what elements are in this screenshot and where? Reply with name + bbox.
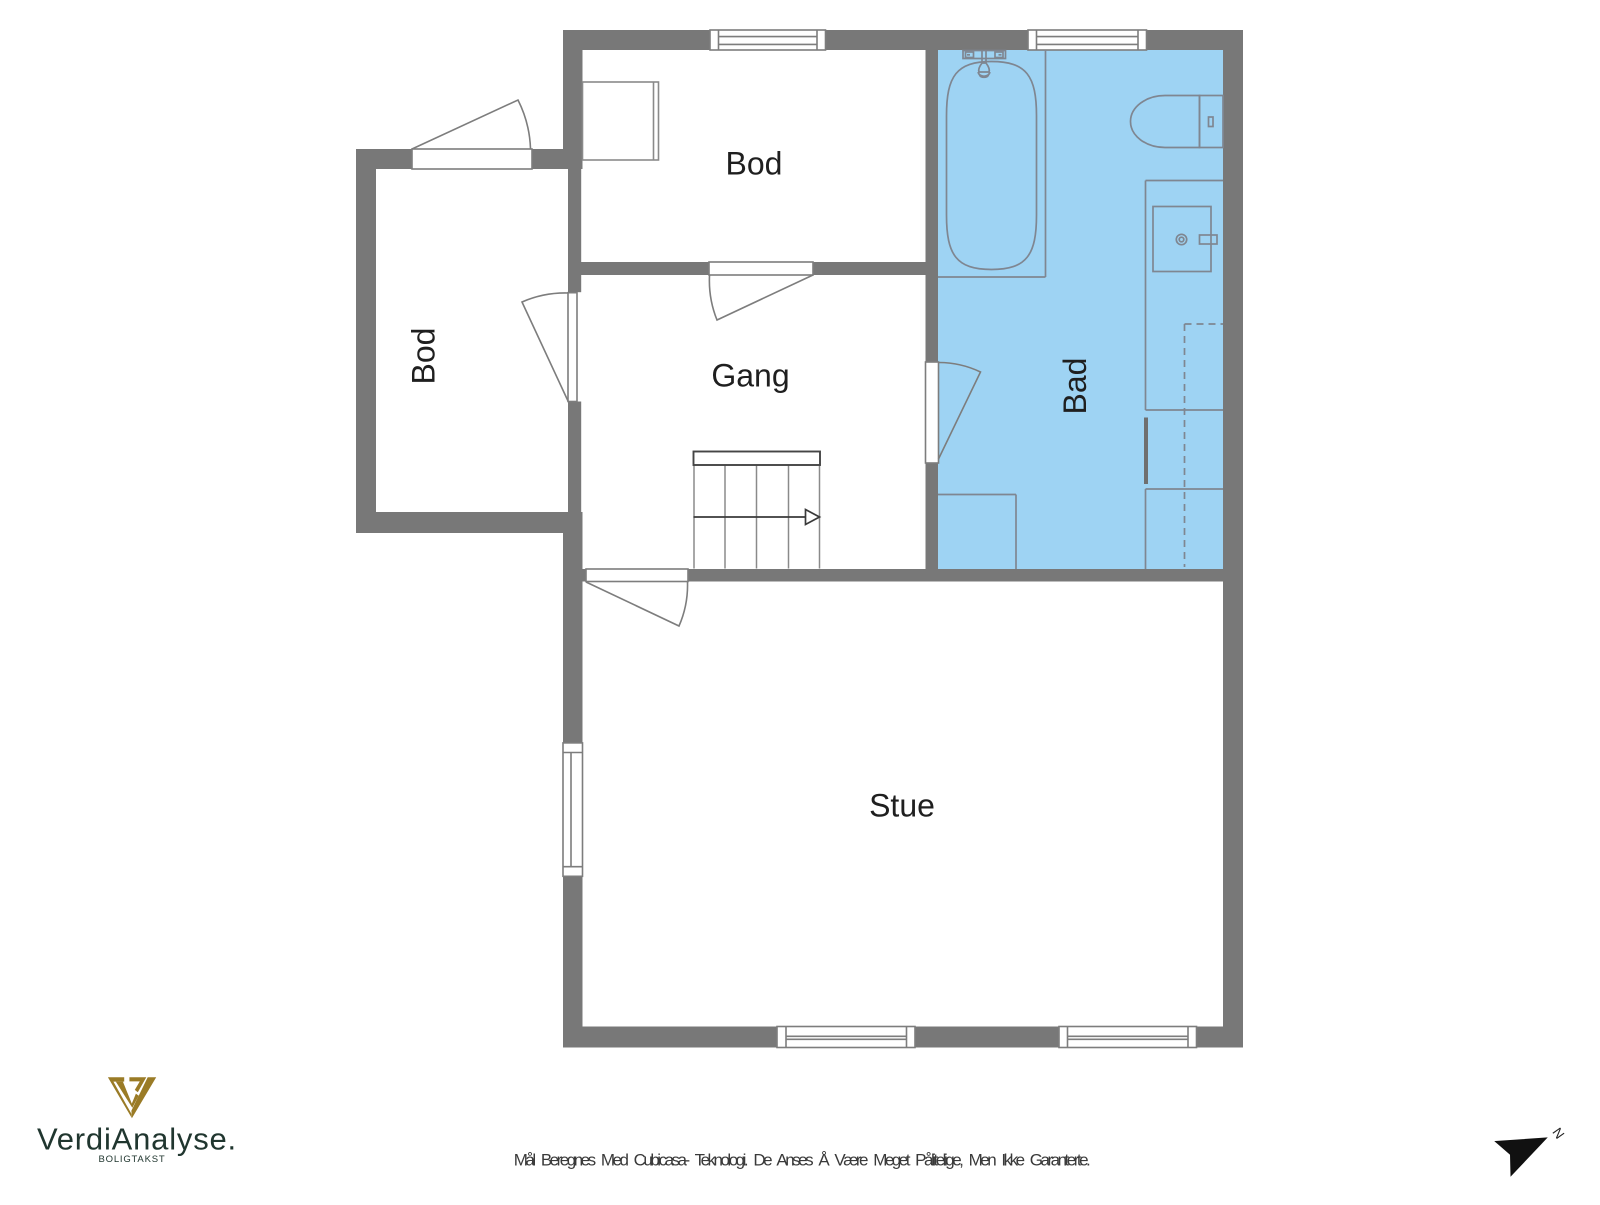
svg-text:Bod: Bod xyxy=(726,146,783,182)
svg-text:BOLIGTAKST: BOLIGTAKST xyxy=(99,1154,166,1165)
svg-text:Mål Beregnes Med Cubicasa- Tek: Mål Beregnes Med Cubicasa- Teknologi. De… xyxy=(514,1151,1090,1170)
svg-text:Stue: Stue xyxy=(869,788,935,824)
svg-text:VerdiAnalyse.: VerdiAnalyse. xyxy=(37,1122,237,1157)
svg-text:Bod: Bod xyxy=(406,328,442,385)
svg-text:Bad: Bad xyxy=(1057,358,1093,415)
svg-text:Gang: Gang xyxy=(711,358,789,394)
